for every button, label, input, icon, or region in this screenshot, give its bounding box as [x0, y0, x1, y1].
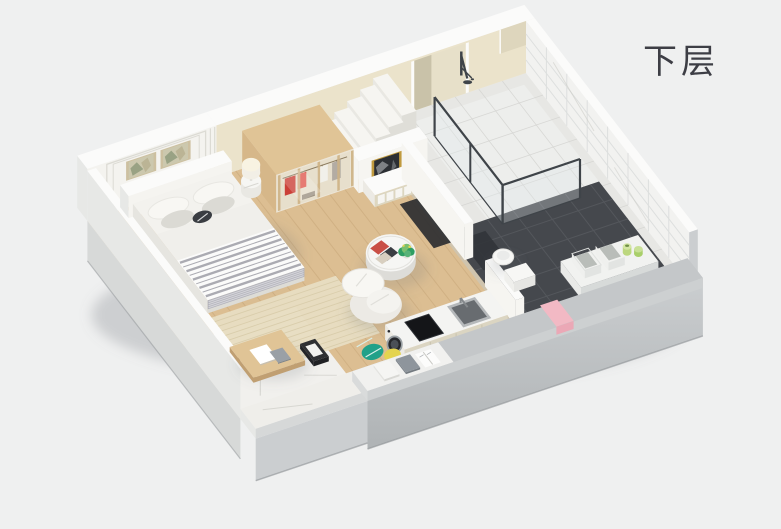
nightstand-lamp [241, 158, 261, 198]
screenshot-canvas: 下层 [0, 0, 781, 529]
floor-label: 下层 [643, 34, 719, 83]
